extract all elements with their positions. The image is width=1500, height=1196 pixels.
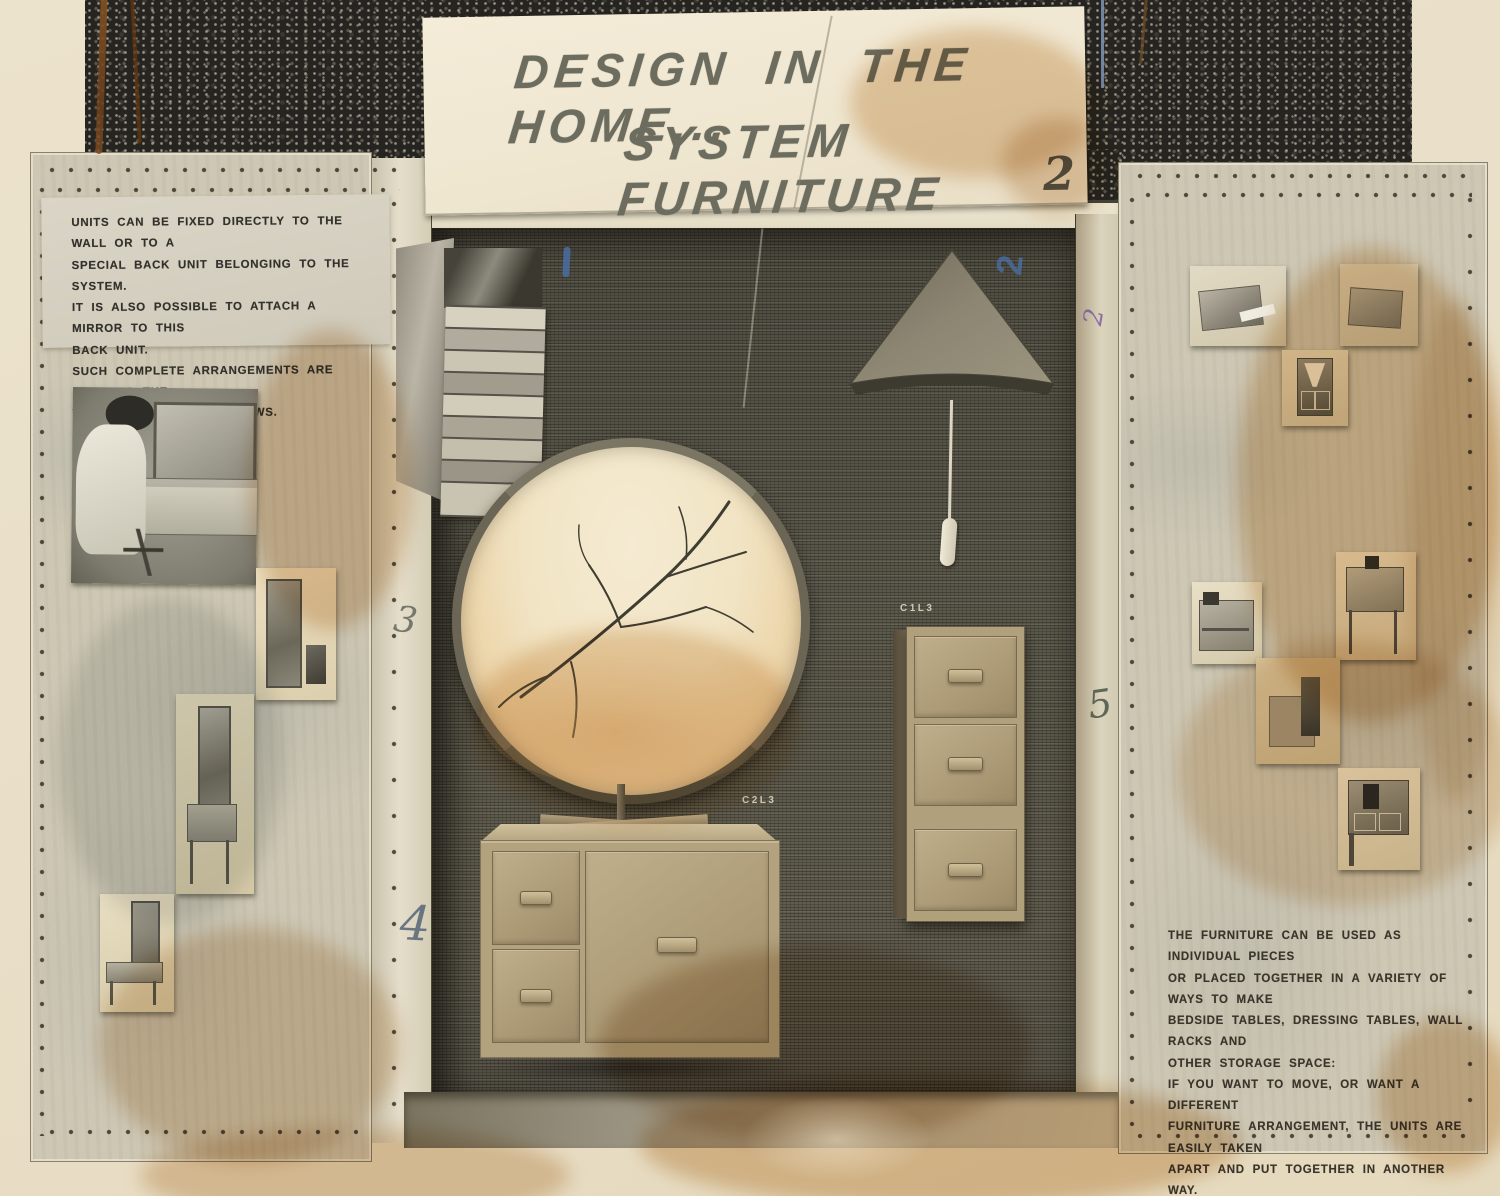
alcove-right-wall [1075,214,1121,1124]
sign-number: 2 [1043,146,1076,201]
photo-chest-of-drawers [1192,582,1262,664]
pencil-mark-4: 4 [399,895,432,953]
photo-storage-box-open [1190,266,1286,346]
left-panel-dots-top [48,166,398,174]
exhibition-display-photograph: C1L3 C2L3 2 2 3 4 5 U [0,0,1500,1196]
stage-floor [404,1092,1120,1148]
blue-pen-numeral: 2 [988,253,1032,277]
swatch-glass-top [444,248,542,308]
left-panel-dots-bottom [48,1128,358,1136]
wall-cabinet [480,824,778,1056]
photo-mirror-with-cabinet [256,568,336,700]
round-mirror [452,438,810,804]
title-sign: DESIGN IN THE HOME... SYSTEM FURNITURE 2 [422,6,1087,216]
cabinet-shadow [468,1054,798,1082]
photo-dressing-table [142,478,258,536]
photo-storage-box [1340,264,1418,346]
blue-scratch-line [1101,0,1104,88]
wall-unit-label: C1L3 [900,603,934,614]
wall-drawer-unit [893,626,1023,920]
cabinet-label: C2L3 [742,795,776,806]
right-panel-dots-top [1136,172,1472,180]
left-panel-dots-top2 [56,186,400,194]
photo-bedside-table-tall [1336,552,1416,660]
photo-bedside-table-drawers [1338,768,1420,870]
photo-woman-dressing-table [71,387,258,585]
photo-mirror-with-bench [100,894,174,1012]
photo-mirror [153,402,256,484]
photo-stool [123,529,164,576]
photo-cabinet-unit [1256,658,1340,764]
photo-small-drawer-unit [1282,350,1348,426]
sign-title-line2: SYSTEM FURNITURE [615,108,1093,226]
right-panel-dots-left [1128,196,1136,1126]
right-panel-dots-top2 [1144,191,1472,199]
photo-mirror-with-table [176,694,254,894]
right-caption: THE FURNITURE CAN BE USED AS INDIVIDUAL … [1168,926,1478,1196]
